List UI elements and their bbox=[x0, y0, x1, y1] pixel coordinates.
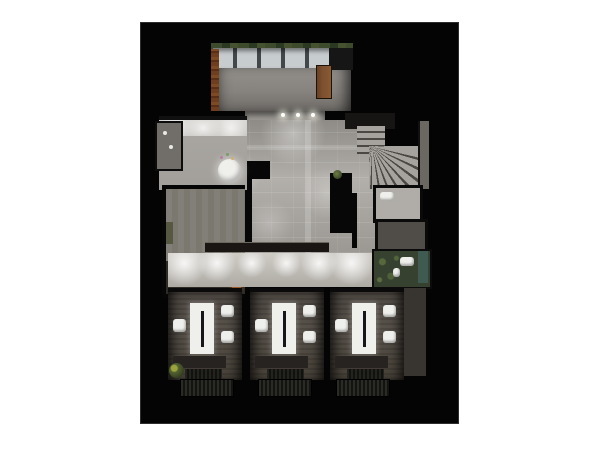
lower-corridor bbox=[168, 253, 372, 287]
toilet-icon bbox=[221, 331, 234, 343]
washbasin-icon bbox=[255, 319, 268, 332]
vanity-counter bbox=[335, 356, 388, 368]
brick-wall-strip bbox=[211, 49, 219, 111]
room-shower-3 bbox=[330, 288, 404, 380]
toilet-icon bbox=[400, 257, 414, 266]
washbasin-icon bbox=[173, 319, 186, 332]
right-wall-extension bbox=[404, 288, 426, 376]
flower-fleck bbox=[231, 157, 234, 160]
floor-mat bbox=[337, 380, 389, 396]
room-shower-1 bbox=[168, 288, 242, 380]
room-wc-small bbox=[373, 185, 423, 223]
pendant-light-icon bbox=[281, 113, 285, 117]
bottle-icon bbox=[169, 145, 173, 149]
teal-drape bbox=[418, 251, 428, 283]
potted-plant-icon bbox=[333, 170, 342, 179]
kitchen-cabinet bbox=[155, 121, 183, 171]
vanity-counter bbox=[255, 356, 308, 368]
door-handle-icon bbox=[283, 311, 286, 347]
shower-door bbox=[190, 303, 214, 354]
room-wc-green bbox=[372, 249, 432, 289]
stair-outer-wall bbox=[418, 121, 429, 189]
pendant-light-icon bbox=[296, 113, 300, 117]
toilet-icon bbox=[303, 331, 316, 343]
door-handle-icon bbox=[363, 311, 366, 347]
floor-mat bbox=[181, 380, 233, 396]
cistern-icon bbox=[393, 268, 400, 277]
toilet-icon bbox=[303, 305, 316, 317]
washbasin-icon bbox=[380, 192, 394, 201]
plant-icon bbox=[169, 363, 184, 378]
toilet-icon bbox=[383, 331, 396, 343]
floorplan-render-canvas bbox=[141, 23, 458, 423]
shower-floor bbox=[347, 369, 384, 380]
shower-floor bbox=[185, 369, 222, 380]
door-handle-icon bbox=[201, 311, 204, 347]
flower-fleck bbox=[226, 153, 229, 156]
toilet-icon bbox=[383, 305, 396, 317]
shower-door bbox=[272, 303, 296, 354]
shower-floor bbox=[267, 369, 304, 380]
room-conservatory bbox=[211, 43, 353, 111]
flower-fleck bbox=[220, 156, 223, 159]
stair-winders bbox=[369, 146, 423, 189]
shower-door bbox=[352, 303, 376, 354]
room-staircase bbox=[345, 113, 429, 189]
reception-counter bbox=[205, 242, 329, 252]
washbasin-icon bbox=[335, 319, 348, 332]
wall-art bbox=[166, 222, 173, 244]
room-storage bbox=[375, 219, 428, 253]
bottle-icon bbox=[163, 131, 167, 135]
wood-door bbox=[317, 66, 331, 98]
room-shower-2 bbox=[250, 288, 324, 380]
toilet-icon bbox=[221, 305, 234, 317]
wall-thin-right bbox=[352, 193, 357, 248]
round-table bbox=[218, 159, 241, 182]
pendant-light-icon bbox=[311, 113, 315, 117]
ceiling-beam-highlight-v bbox=[305, 120, 311, 253]
dark-corner bbox=[329, 48, 353, 70]
floor-mat bbox=[259, 380, 311, 396]
